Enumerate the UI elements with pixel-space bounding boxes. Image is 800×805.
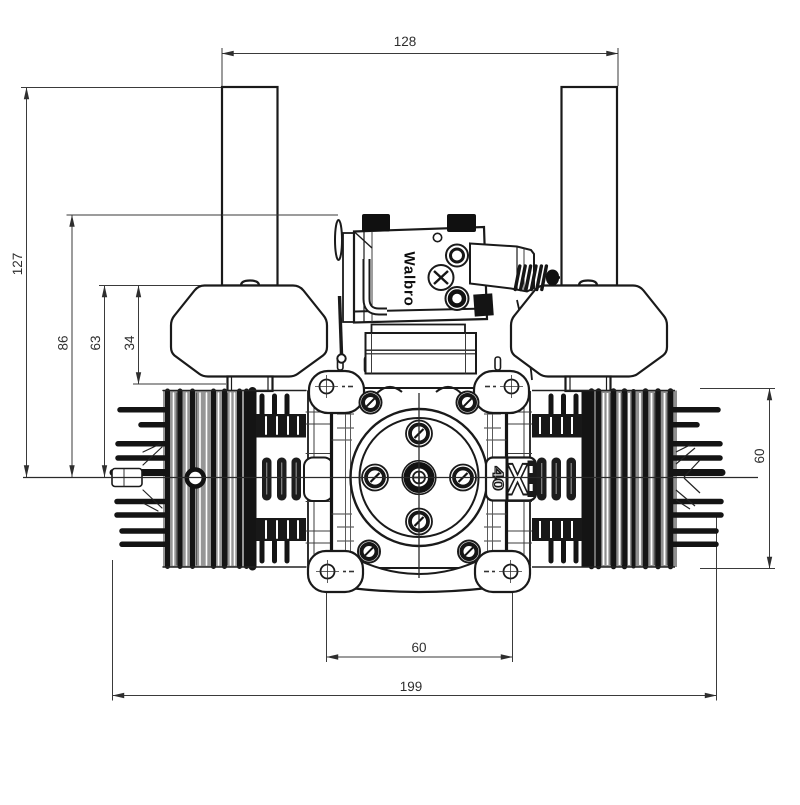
svg-text:86: 86 [56,335,71,350]
svg-text:127: 127 [10,253,25,276]
svg-text:40: 40 [489,466,506,490]
svg-text:34: 34 [122,335,137,351]
svg-text:60: 60 [411,640,426,655]
svg-text:199: 199 [400,679,423,694]
svg-text:60: 60 [752,448,767,463]
svg-text:63: 63 [88,335,103,350]
svg-text:Walbro: Walbro [401,251,418,306]
svg-text:X: X [506,454,528,504]
svg-text:128: 128 [394,34,417,49]
